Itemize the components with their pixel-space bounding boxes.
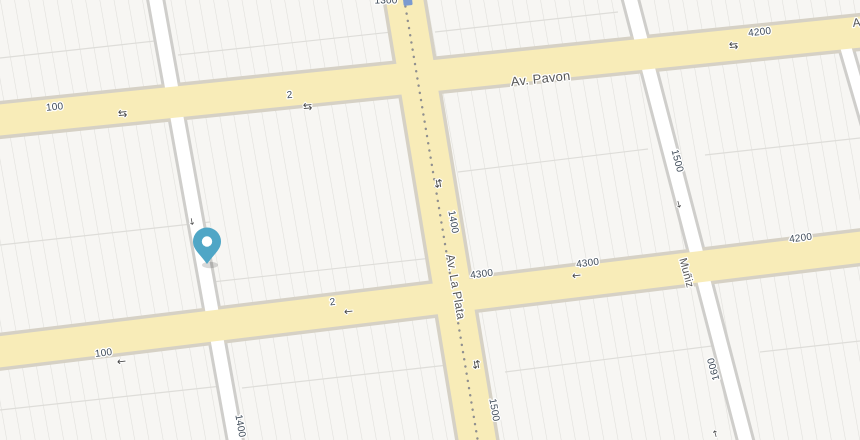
map-canvas[interactable]: 100 ⇆ 2 ⇆ Av. Pavon ⇆ 4200 Av. 100 ← 2 ←… xyxy=(0,0,860,440)
map-svg: 100 ⇆ 2 ⇆ Av. Pavon ⇆ 4200 Av. 100 ← 2 ←… xyxy=(0,0,860,440)
two-way-arrow-icon: ⇆ xyxy=(117,107,128,121)
one-way-arrow-icon: ← xyxy=(116,355,127,369)
one-way-arrow-icon: ← xyxy=(343,305,354,319)
one-way-arrow-icon: ← xyxy=(571,269,582,283)
pin-shadow xyxy=(202,262,218,268)
block-number-label: 100 xyxy=(94,347,113,360)
street-name-partial: Av. xyxy=(852,14,860,30)
two-way-arrow-icon: ⇆ xyxy=(728,39,739,53)
transit-badge xyxy=(403,0,413,6)
block-number-label-partial: 1300 xyxy=(374,0,397,7)
two-way-arrow-icon: ⇆ xyxy=(302,100,313,114)
block-number-label: 100 xyxy=(46,101,65,114)
pin-hole xyxy=(202,236,212,246)
